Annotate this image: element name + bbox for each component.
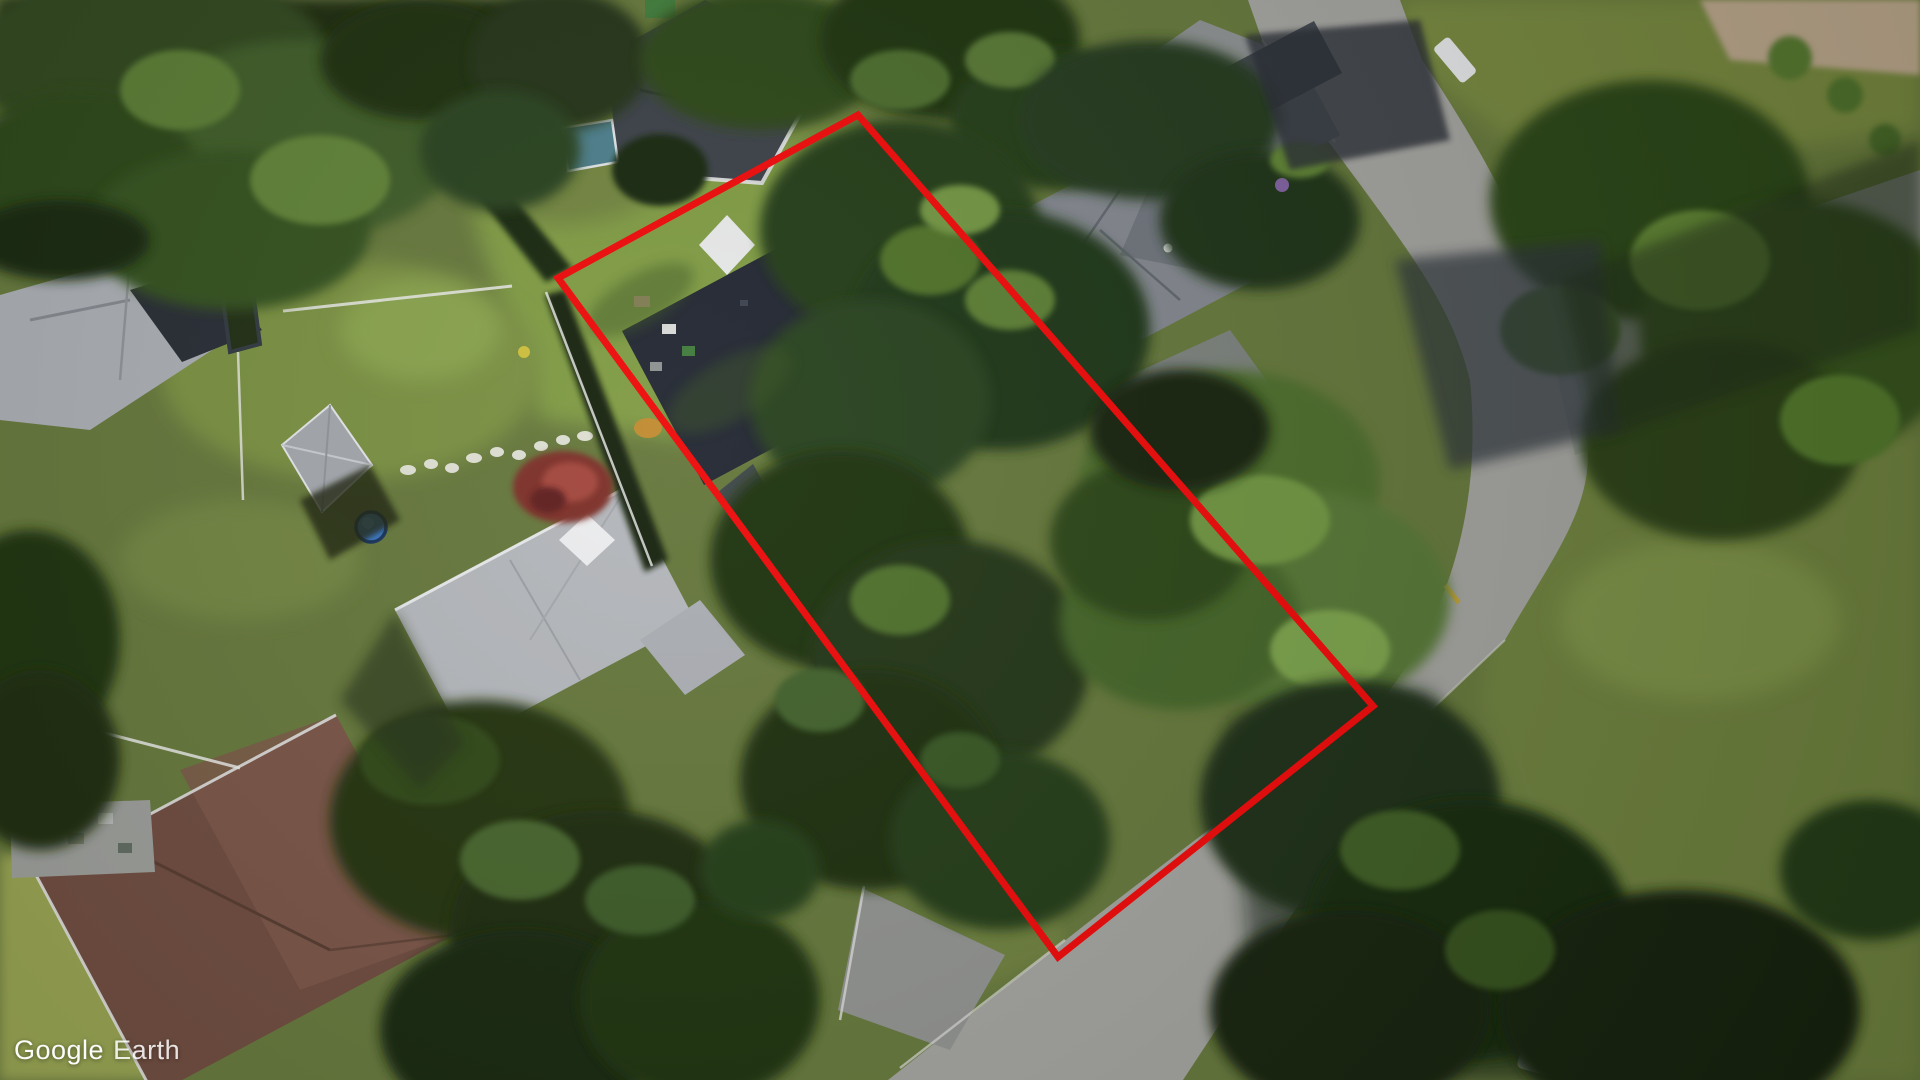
orange-shrub bbox=[634, 418, 662, 438]
google-earth-watermark: GoogleEarth bbox=[14, 1035, 180, 1066]
hedge bbox=[612, 134, 708, 206]
aerial-imagery bbox=[0, 0, 1920, 1080]
japanese-maple-tree bbox=[513, 451, 613, 523]
watermark-product: Earth bbox=[113, 1035, 180, 1065]
purple-shrub bbox=[1275, 178, 1289, 192]
watermark-brand: Google bbox=[14, 1035, 104, 1065]
google-earth-map-canvas[interactable]: GoogleEarth bbox=[0, 0, 1920, 1080]
yellow-shrub bbox=[518, 346, 530, 358]
